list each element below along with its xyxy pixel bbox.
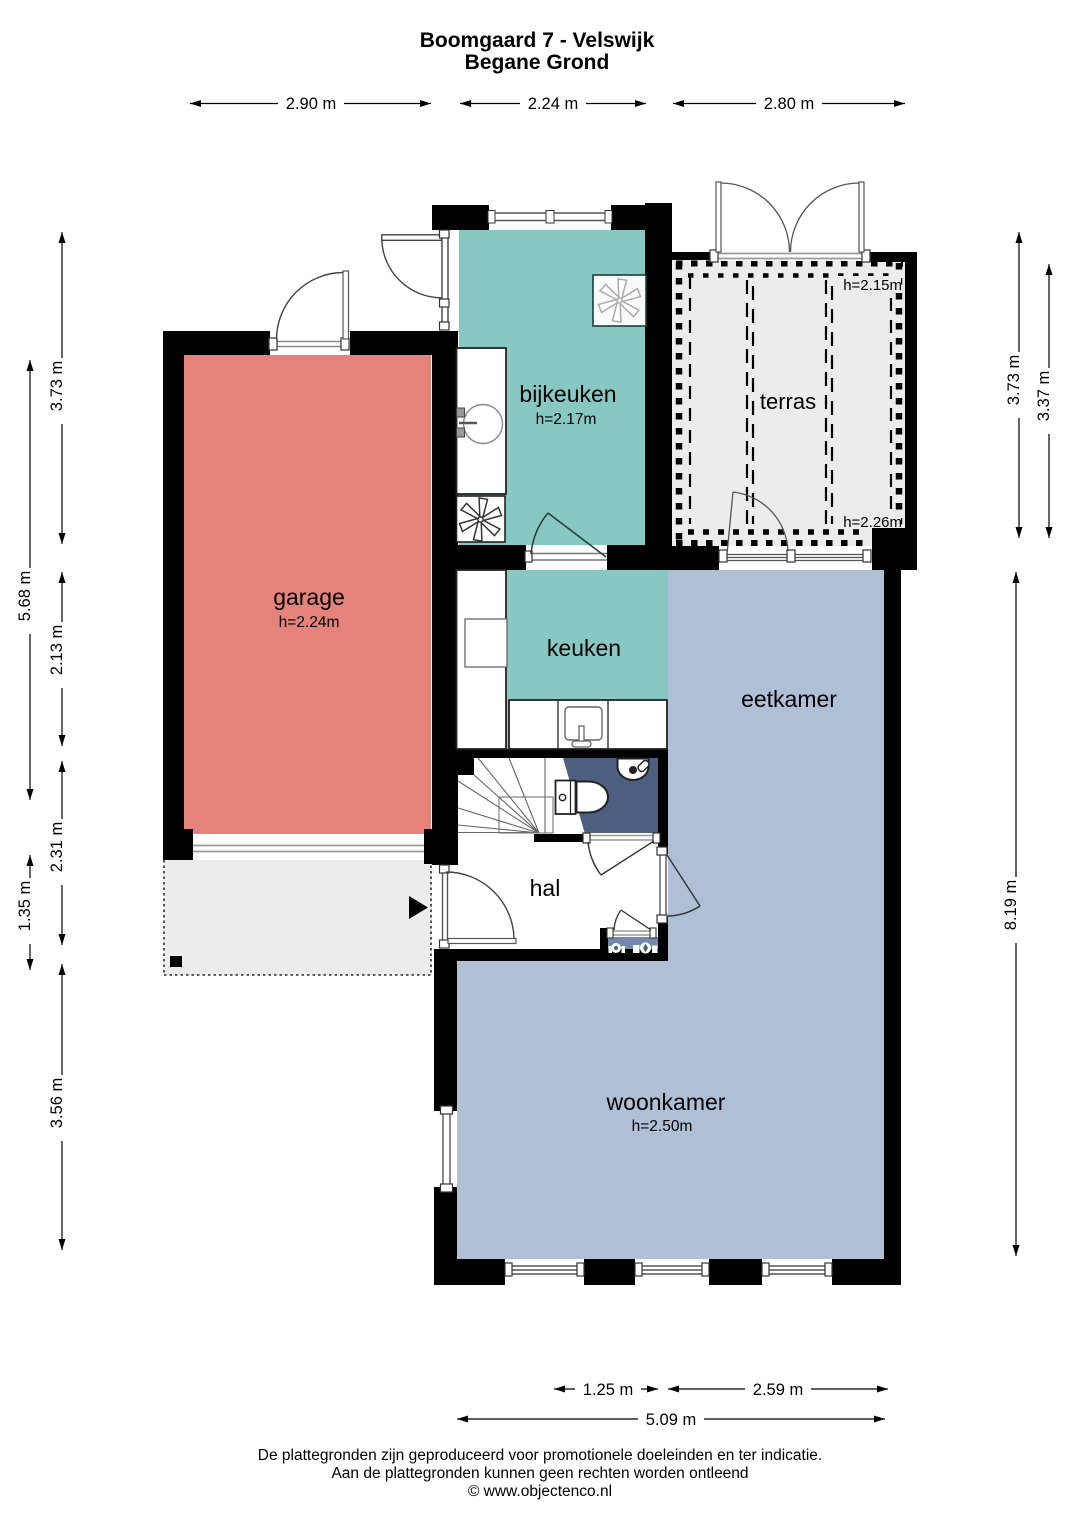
svg-text:h=2.15m: h=2.15m [843,277,902,294]
svg-text:eetkamer: eetkamer [741,686,837,712]
svg-text:3.73 m: 3.73 m [1005,355,1023,405]
svg-text:Aan de plattegronden kunnen ge: Aan de plattegronden kunnen geen rechten… [331,1465,748,1482]
svg-text:2.90 m: 2.90 m [286,95,336,113]
svg-text:bijkeuken: bijkeuken [519,381,616,407]
svg-text:Boomgaard 7 - Velswijk: Boomgaard 7 - Velswijk [420,29,655,52]
svg-text:8.19 m: 8.19 m [1002,880,1020,930]
svg-text:3.73 m: 3.73 m [48,361,66,411]
svg-text:De plattegronden zijn geproduc: De plattegronden zijn geproduceerd voor … [258,1447,822,1464]
svg-text:5.68 m: 5.68 m [16,571,34,621]
svg-text:Begane Grond: Begane Grond [465,51,610,74]
svg-text:hal: hal [530,875,561,901]
svg-text:woonkamer: woonkamer [606,1089,726,1115]
svg-text:2.31 m: 2.31 m [48,822,66,872]
svg-text:2.59 m: 2.59 m [753,1381,803,1399]
svg-text:2.13 m: 2.13 m [48,625,66,675]
svg-text:h=2.17m: h=2.17m [536,411,597,428]
svg-text:3.56 m: 3.56 m [48,1078,66,1128]
svg-text:1.35 m: 1.35 m [16,881,34,931]
svg-text:© www.objectenco.nl: © www.objectenco.nl [468,1483,612,1500]
svg-text:garage: garage [273,584,345,610]
svg-text:2.24 m: 2.24 m [528,95,578,113]
svg-text:h=2.50m: h=2.50m [632,1118,693,1135]
svg-text:3.37 m: 3.37 m [1035,371,1053,421]
svg-text:1.25 m: 1.25 m [583,1381,633,1399]
svg-text:2.80 m: 2.80 m [764,95,814,113]
svg-text:h=2.24m: h=2.24m [279,614,340,631]
svg-text:terras: terras [760,389,816,414]
svg-text:5.09 m: 5.09 m [646,1411,696,1429]
svg-text:keuken: keuken [547,635,621,661]
